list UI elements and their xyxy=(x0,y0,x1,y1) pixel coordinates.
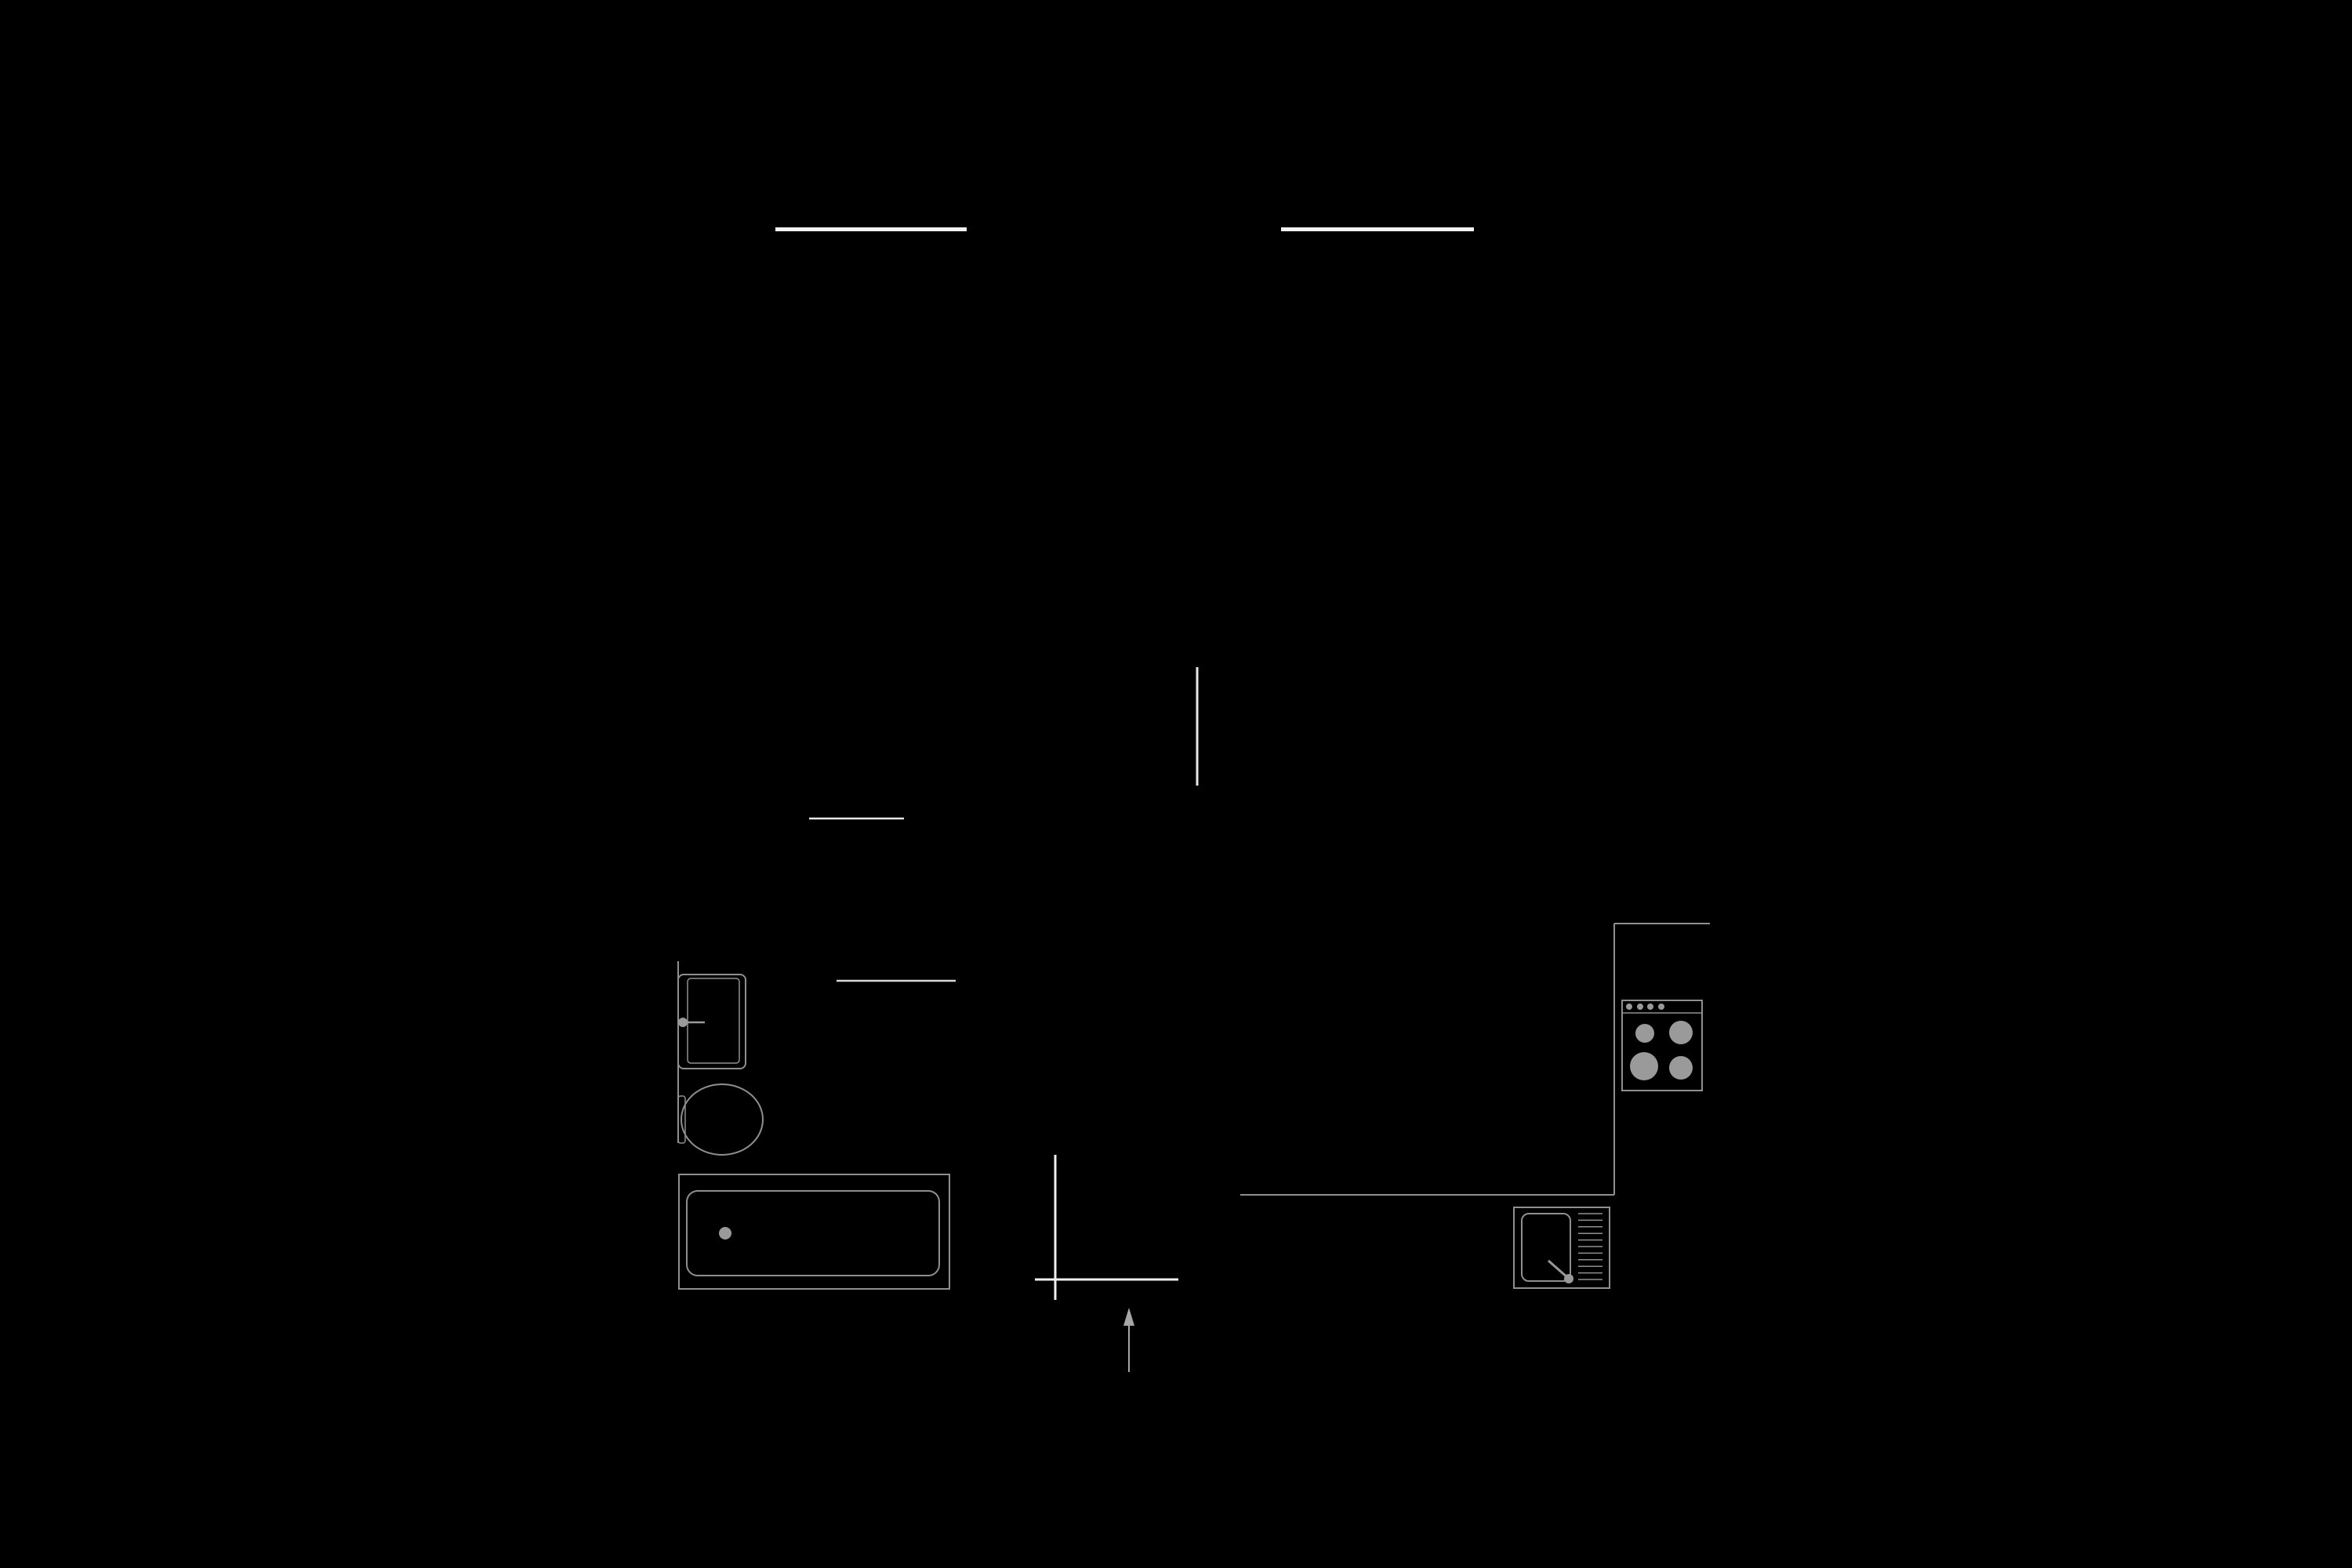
stove-burner-top-left xyxy=(1635,1024,1654,1043)
kitchen-sink-faucet-dot xyxy=(1564,1274,1573,1283)
bathroom-sink-inner xyxy=(688,978,739,1063)
floor-plan-svg xyxy=(0,0,2352,1568)
kitchen-sink-outer xyxy=(1514,1207,1610,1288)
stove-knob-3 xyxy=(1647,1004,1653,1010)
window-bar-left xyxy=(775,227,967,231)
bathtub-drain-dot xyxy=(719,1227,731,1240)
bathroom-sink-faucet-dot xyxy=(678,1018,688,1027)
floor-plan-canvas xyxy=(0,0,2352,1568)
stove-knob-2 xyxy=(1637,1004,1643,1010)
stove-burner-bottom-left xyxy=(1630,1052,1658,1080)
toilet-bowl xyxy=(681,1084,763,1155)
stove-knob-1 xyxy=(1626,1004,1632,1010)
stove-burner-top-right xyxy=(1669,1021,1693,1044)
entrance-arrow-head xyxy=(1123,1308,1134,1326)
stove-burner-bottom-right xyxy=(1669,1056,1693,1080)
stove-body xyxy=(1622,1000,1702,1091)
window-bar-right xyxy=(1281,227,1474,231)
kitchen-sink-faucet-line xyxy=(1548,1261,1568,1278)
stove-knob-4 xyxy=(1658,1004,1664,1010)
kitchen-sink-basin xyxy=(1522,1214,1570,1281)
